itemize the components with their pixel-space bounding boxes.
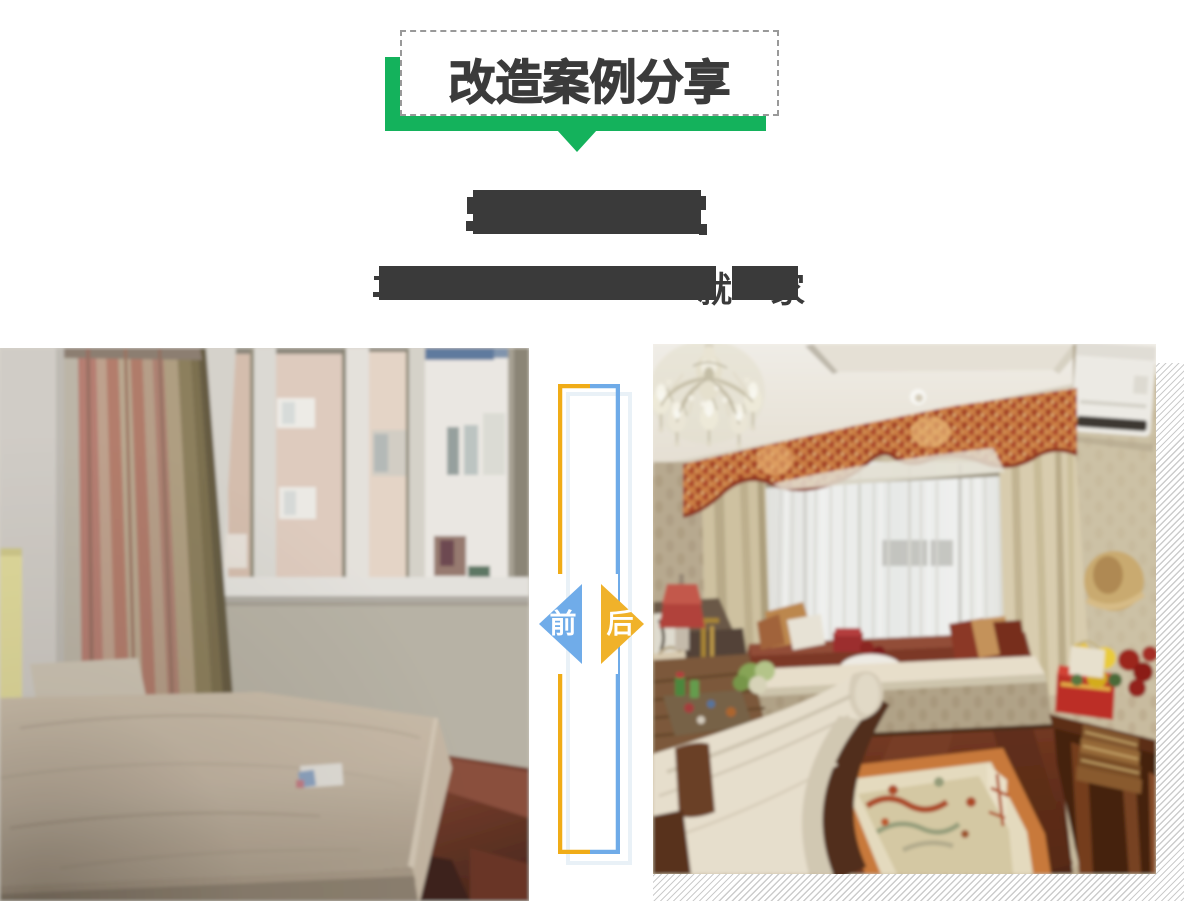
svg-text:后: 后 xyxy=(607,609,634,639)
svg-text:前: 前 xyxy=(550,608,577,639)
